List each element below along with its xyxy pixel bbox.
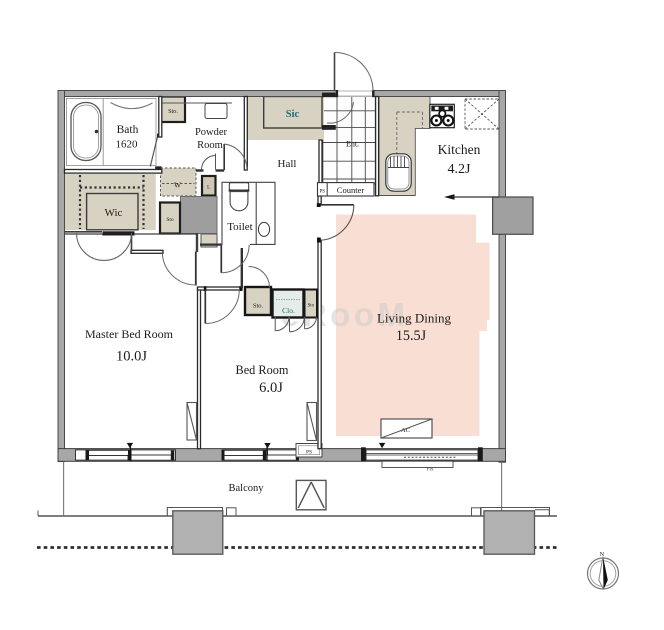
- svg-text:Living Dining: Living Dining: [377, 311, 452, 326]
- svg-text:Powder: Powder: [195, 127, 228, 138]
- svg-text:Sto: Sto: [166, 217, 174, 223]
- svg-text:Kitchen: Kitchen: [438, 142, 481, 157]
- svg-text:Room: Room: [197, 140, 223, 151]
- svg-text:Ent.: Ent.: [346, 140, 359, 149]
- svg-text:Bed Room: Bed Room: [236, 363, 289, 377]
- svg-text:Sto.: Sto.: [168, 108, 178, 115]
- svg-text:10.0J: 10.0J: [116, 349, 147, 365]
- svg-text:PS: PS: [306, 450, 312, 456]
- svg-text:Sto.: Sto.: [253, 303, 264, 310]
- svg-text:Sic: Sic: [286, 109, 300, 120]
- svg-text:1620: 1620: [116, 139, 139, 151]
- svg-text:Sto: Sto: [308, 304, 315, 309]
- svg-text:15.5J: 15.5J: [396, 328, 427, 344]
- svg-text:Hall: Hall: [278, 158, 297, 170]
- svg-text:Counter: Counter: [337, 185, 365, 195]
- svg-text:Wic: Wic: [105, 207, 123, 219]
- svg-text:Bath: Bath: [117, 124, 139, 136]
- svg-text:Fix: Fix: [426, 467, 434, 473]
- svg-text:PS: PS: [320, 190, 326, 195]
- svg-text:W: W: [174, 181, 182, 190]
- svg-text:L: L: [207, 186, 210, 191]
- svg-text:Toilet: Toilet: [227, 221, 253, 233]
- svg-text:Clo.: Clo.: [282, 306, 295, 315]
- svg-text:4.2J: 4.2J: [448, 162, 472, 177]
- svg-text:Master Bed Room: Master Bed Room: [85, 327, 174, 341]
- svg-text:AC: AC: [401, 427, 410, 434]
- svg-text:6.0J: 6.0J: [259, 380, 283, 396]
- svg-text:Balcony: Balcony: [229, 483, 265, 494]
- svg-text:N: N: [600, 551, 605, 558]
